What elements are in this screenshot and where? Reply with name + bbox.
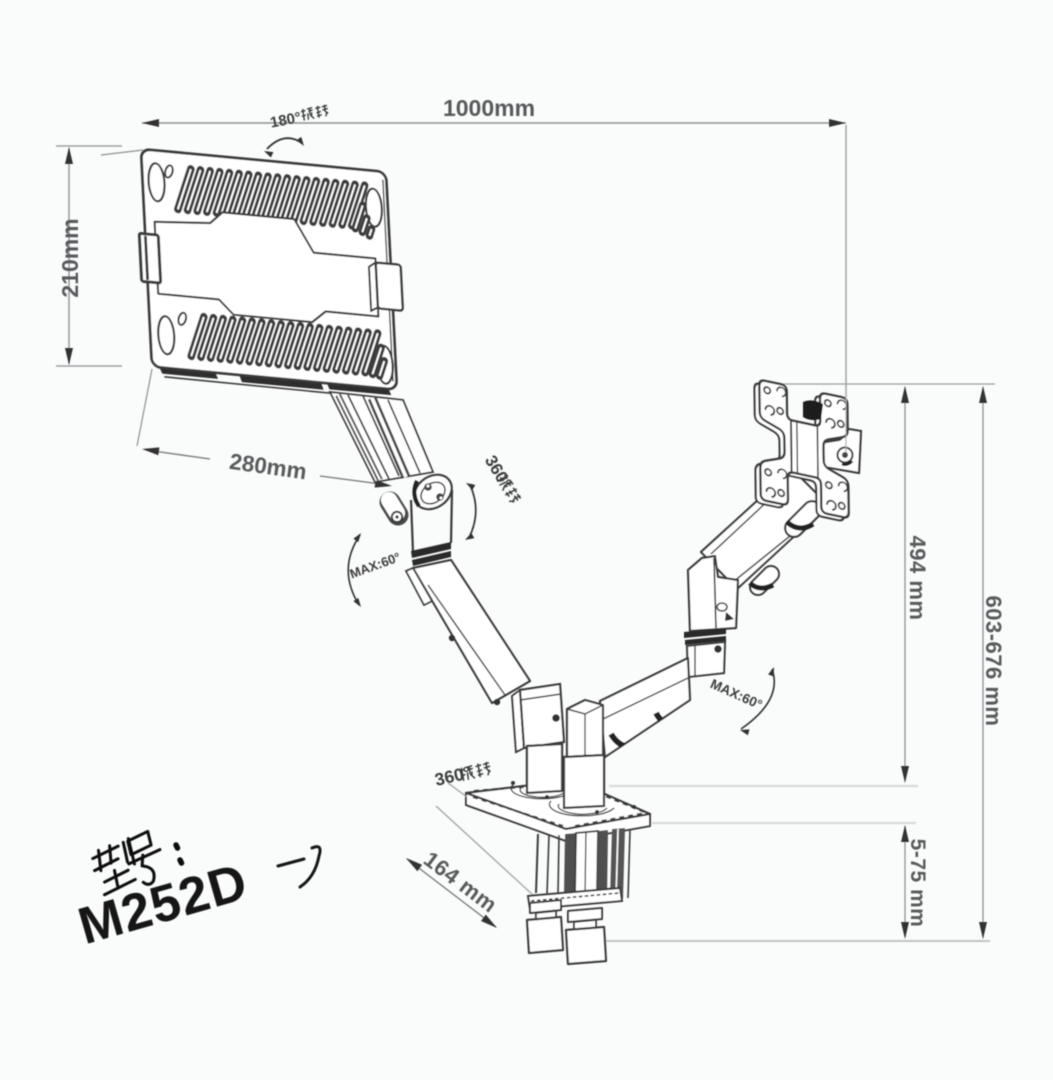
svg-text:494 mm: 494 mm — [905, 536, 930, 621]
svg-text:603-676 mm: 603-676 mm — [981, 596, 1006, 727]
svg-text:210mm: 210mm — [57, 218, 83, 297]
svg-text:5-75 mm: 5-75 mm — [906, 839, 929, 928]
svg-text:1000mm: 1000mm — [443, 95, 535, 121]
